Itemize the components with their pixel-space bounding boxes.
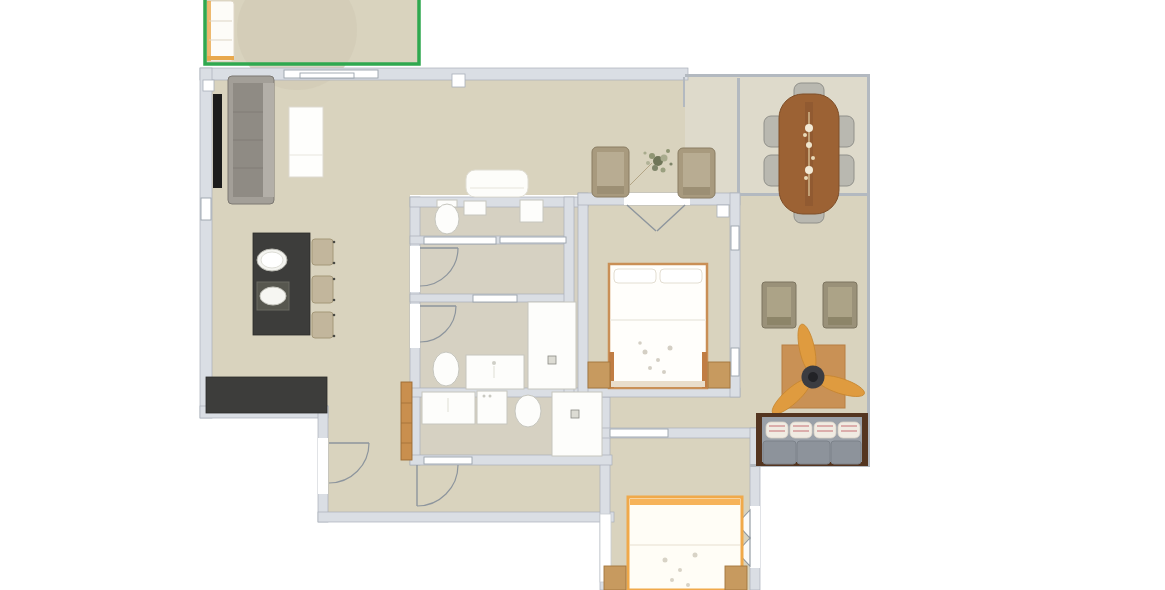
pillow bbox=[614, 269, 656, 283]
seat-cushion bbox=[763, 441, 796, 464]
dining-table[interactable] bbox=[779, 94, 839, 214]
armchair-left[interactable] bbox=[592, 147, 629, 197]
toilet[interactable] bbox=[433, 352, 459, 386]
terrace-top-line bbox=[685, 74, 870, 77]
bar-stool-3[interactable] bbox=[312, 312, 333, 338]
bar-stools[interactable] bbox=[312, 239, 335, 338]
wc-cabinet-2[interactable] bbox=[520, 200, 543, 222]
tv[interactable] bbox=[213, 94, 222, 188]
armchair-right[interactable] bbox=[678, 148, 715, 198]
seat-cushion bbox=[797, 441, 830, 464]
terrace-right-line bbox=[867, 74, 870, 467]
wc-window-1 bbox=[424, 237, 496, 244]
bathroom2-sliding-door[interactable] bbox=[424, 457, 472, 464]
corner-marker bbox=[452, 74, 465, 87]
wc-cabinet[interactable] bbox=[464, 201, 486, 215]
balcony-door-slider bbox=[300, 73, 354, 78]
shower[interactable] bbox=[528, 302, 576, 389]
seat-cushion bbox=[831, 441, 861, 464]
lounger[interactable] bbox=[207, 1, 234, 61]
kitchen-island[interactable] bbox=[253, 233, 310, 335]
bar-stool-2[interactable] bbox=[312, 276, 333, 303]
left-wall-window bbox=[201, 198, 211, 220]
bathroom1-transom bbox=[473, 295, 517, 302]
bar-stool-1[interactable] bbox=[312, 239, 333, 265]
toilet-2[interactable] bbox=[515, 395, 541, 427]
hallway[interactable] bbox=[401, 382, 412, 460]
wall-stub-line bbox=[683, 77, 685, 107]
living-terrace-line bbox=[737, 78, 740, 193]
wc-window-2 bbox=[500, 237, 566, 243]
washer[interactable] bbox=[477, 391, 507, 424]
daybed[interactable] bbox=[756, 413, 868, 466]
nightstand-right[interactable] bbox=[708, 362, 730, 388]
nightstand-left[interactable] bbox=[588, 362, 610, 388]
corner-marker bbox=[203, 80, 214, 91]
vanity-2[interactable] bbox=[422, 392, 475, 424]
nightstand-left-2[interactable] bbox=[604, 566, 626, 590]
floor-plan-canvas bbox=[0, 0, 1165, 590]
vanity[interactable] bbox=[466, 355, 524, 389]
nightstand-right-2[interactable] bbox=[725, 566, 747, 590]
bedroom2-window-shelf bbox=[610, 429, 668, 437]
coffee-table[interactable] bbox=[289, 107, 323, 177]
cooktop[interactable] bbox=[257, 282, 289, 310]
lounge-chair-1[interactable] bbox=[762, 282, 796, 328]
double-bed-1[interactable] bbox=[609, 264, 707, 388]
wc-toilet[interactable] bbox=[435, 204, 459, 234]
pillow bbox=[660, 269, 702, 283]
floor-plan-svg bbox=[0, 0, 1165, 590]
kitchen-counter[interactable] bbox=[206, 377, 327, 413]
bedroom1-window-2 bbox=[731, 348, 739, 376]
shower-2[interactable] bbox=[552, 392, 602, 456]
loveseat[interactable] bbox=[466, 170, 528, 197]
corner-marker bbox=[717, 205, 729, 217]
bedroom1-window-1 bbox=[731, 226, 739, 250]
living-floor-left bbox=[212, 195, 410, 408]
sofa[interactable] bbox=[228, 76, 274, 204]
lounge-chair-2[interactable] bbox=[823, 282, 857, 328]
hall-closet[interactable] bbox=[401, 382, 412, 460]
